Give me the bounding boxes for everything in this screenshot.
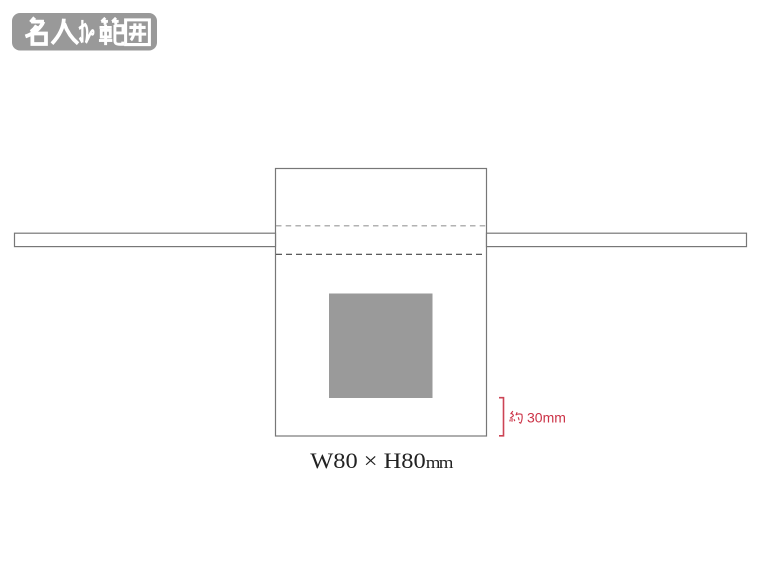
svg-text:30mm: 30mm xyxy=(527,410,566,426)
